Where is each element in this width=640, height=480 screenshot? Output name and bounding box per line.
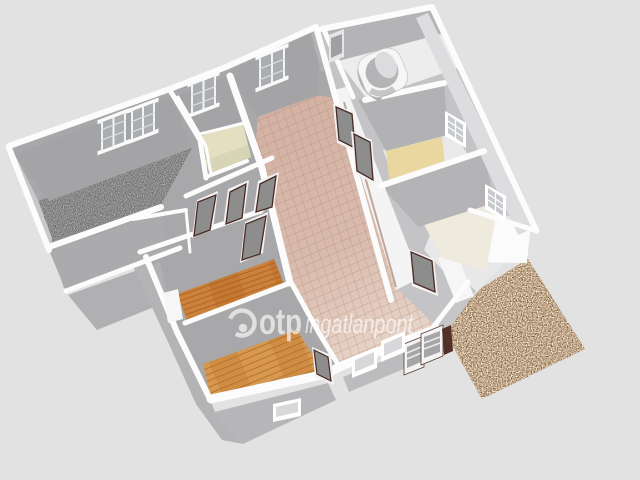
svg-text:otp: otp (259, 301, 302, 342)
svg-text:ingatlanpont: ingatlanpont (305, 309, 414, 339)
